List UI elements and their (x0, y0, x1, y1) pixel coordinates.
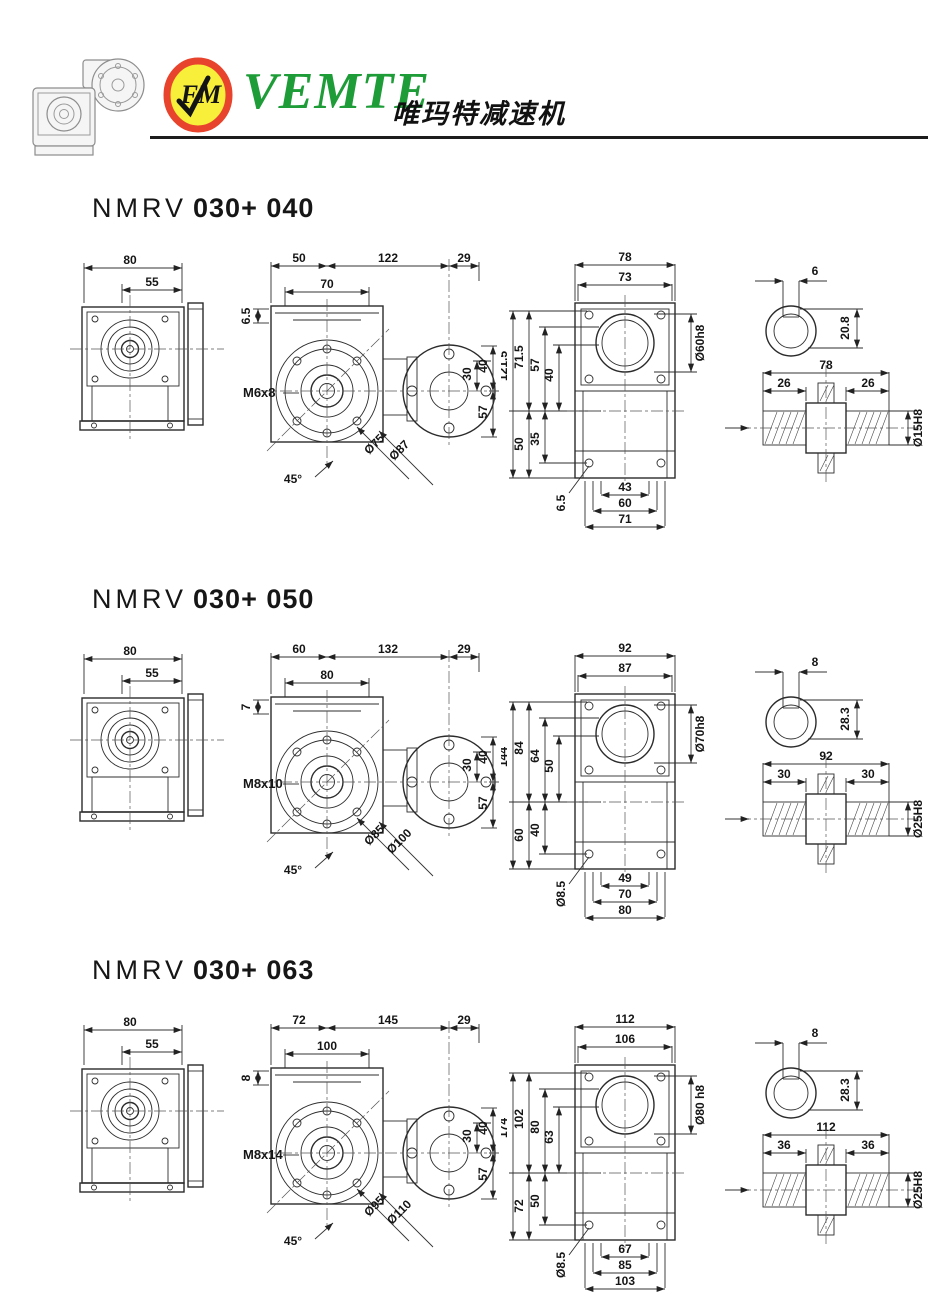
dim-label: 29 (457, 1013, 471, 1027)
series-name: NMRV (92, 584, 187, 614)
dim-label: 122 (378, 251, 398, 265)
dim-label: 60 (512, 828, 526, 842)
dim-label: 8 (812, 655, 819, 669)
dim-label: 30 (460, 758, 474, 772)
dim-label: 55 (145, 666, 159, 680)
dim-label: 102 (512, 1109, 526, 1129)
dim-label: 80 (618, 903, 632, 917)
view-side: 80 55 (66, 642, 241, 857)
dim-label: 121.5 (501, 351, 510, 381)
drawing-row: 80 55 60 132 29 (66, 642, 950, 924)
section-title: NMRV030+ 050 (92, 583, 950, 616)
dim-label: 112 (615, 1013, 635, 1026)
section-title: NMRV030+ 063 (92, 954, 950, 987)
dim-label: 40 (542, 368, 556, 382)
bore-label: Ø25H8 (911, 800, 925, 838)
dim-label: 49 (618, 871, 632, 885)
dim-label: 7 (241, 703, 253, 710)
dim-label: 28.3 (838, 1078, 852, 1102)
dim-label: 36 (777, 1138, 791, 1152)
dim-label: 55 (145, 275, 159, 289)
view-front: 72 145 29 100 8 (241, 1013, 501, 1273)
dim-label: 80 (123, 253, 137, 267)
series-name: NMRV (92, 193, 187, 223)
dim-label: 6.5 (554, 494, 568, 511)
view-front: 60 132 29 80 7 4 (241, 642, 501, 902)
dim-label: 63 (542, 1130, 556, 1144)
dim-label: 67 (618, 1242, 632, 1256)
dim-label: 64 (528, 749, 542, 763)
dim-label: 103 (615, 1274, 635, 1288)
dim-label: Ø8.5 (554, 1252, 568, 1278)
dim-label: 8 (241, 1074, 253, 1081)
dim-label: 80 (123, 644, 137, 658)
series-name: NMRV (92, 955, 187, 985)
dim-label: Ø110 (384, 1197, 414, 1227)
thread-label: M6x8 (243, 385, 276, 400)
angle-label: 45° (284, 1234, 302, 1248)
model-section: NMRV030+ 050 80 55 (0, 583, 950, 924)
dim-label: 57 (476, 1167, 490, 1181)
dim-label: 29 (457, 251, 471, 265)
view-side: 80 55 (66, 251, 241, 466)
dim-label: 92 (618, 642, 632, 655)
dim-label: 20.8 (838, 316, 852, 340)
thread-label: M8x14 (243, 1147, 284, 1162)
dim-label: 60 (292, 642, 306, 656)
dim-label: 8 (812, 1026, 819, 1040)
angle-label: 45° (284, 472, 302, 486)
dim-label: 30 (861, 767, 875, 781)
dim-label: 144 (501, 747, 510, 767)
view-back: 112 106 Ø80 h8 174 102 (501, 1013, 711, 1295)
dim-label: 26 (777, 376, 791, 390)
dim-label: 43 (618, 480, 632, 494)
dim-label: 70 (618, 887, 632, 901)
dim-label: 6.5 (241, 307, 253, 324)
dim-label: 78 (618, 251, 632, 264)
dim-label: Ø100 (384, 826, 415, 857)
dim-label: Ø87 (386, 437, 412, 463)
dim-label: 30 (777, 767, 791, 781)
header-rule (150, 136, 928, 139)
dim-label: 40 (476, 1121, 490, 1135)
dim-label: 55 (145, 1037, 159, 1051)
dim-label: 30 (460, 1129, 474, 1143)
dim-label: 26 (861, 376, 875, 390)
dim-label: 40 (528, 823, 542, 837)
dim-label: 132 (378, 642, 398, 656)
dim-label: 80 (528, 1120, 542, 1134)
page-header: FM VEMTE 唯玛特减速机 (0, 0, 950, 170)
dim-label: 72 (512, 1199, 526, 1213)
dim-label: 50 (528, 1194, 542, 1208)
dim-label: 57 (476, 796, 490, 810)
view-side: 80 55 (66, 1013, 241, 1228)
dim-label: 30 (460, 367, 474, 381)
dim-label: 50 (512, 437, 526, 451)
drawing-row: 80 55 72 145 29 (66, 1013, 950, 1295)
dim-label: 29 (457, 642, 471, 656)
dim-label: 35 (528, 432, 542, 446)
dim-label: 50 (542, 759, 556, 773)
dim-label: 36 (861, 1138, 875, 1152)
dim-label: 57 (476, 405, 490, 419)
dim-label: 71 (618, 512, 632, 526)
bore-label: Ø25H8 (911, 1171, 925, 1209)
dim-label: 84 (512, 741, 526, 755)
bore-label: Ø80 h8 (693, 1085, 707, 1125)
dim-label: 40 (476, 359, 490, 373)
model-section: NMRV030+ 063 80 55 (0, 954, 950, 1295)
dim-label: 72 (292, 1013, 306, 1027)
bore-label: Ø70h8 (693, 715, 707, 752)
dim-label: 106 (615, 1032, 635, 1046)
view-shaft: 6 20.8 78 26 26 (711, 251, 946, 491)
dim-label: 57 (528, 358, 542, 372)
model-section: NMRV030+ 040 80 55 (0, 192, 950, 533)
section-title: NMRV030+ 040 (92, 192, 950, 225)
sections-container: NMRV030+ 040 80 55 (0, 192, 950, 1295)
dim-label: 80 (320, 668, 334, 682)
dim-label: 145 (378, 1013, 398, 1027)
view-shaft: 8 28.3 92 30 30 (711, 642, 946, 882)
dim-label: 73 (618, 270, 632, 284)
dim-label: 174 (501, 1118, 510, 1138)
dim-label: 6 (812, 264, 819, 278)
bore-label: Ø60h8 (693, 324, 707, 361)
dim-label: 50 (292, 251, 306, 265)
gearbox-photo (25, 50, 155, 165)
model-code: 030+ 040 (193, 193, 314, 223)
dim-label: Ø8.5 (554, 881, 568, 907)
brand-name-cn: 唯玛特减速机 (392, 92, 566, 131)
dim-label: 70 (320, 277, 334, 291)
model-code: 030+ 063 (193, 955, 314, 985)
view-shaft: 8 28.3 112 36 36 (711, 1013, 946, 1253)
logo-monogram: FM (180, 80, 222, 109)
dim-label: 100 (317, 1039, 337, 1053)
brand-logo-icon: FM (162, 56, 236, 136)
dim-label: 85 (618, 1258, 632, 1272)
model-code: 030+ 050 (193, 584, 314, 614)
view-front: 50 122 29 70 6.5 (241, 251, 501, 511)
drawing-row: 80 55 50 122 29 (66, 251, 950, 533)
view-back: 92 87 Ø70h8 144 84 (501, 642, 711, 924)
dim-label: 80 (123, 1015, 137, 1029)
dim-label: 28.3 (838, 707, 852, 731)
dim-label: 40 (476, 750, 490, 764)
dim-label: 71.5 (512, 345, 526, 369)
angle-label: 45° (284, 863, 302, 877)
dim-label: 87 (618, 661, 632, 675)
view-back: 78 73 Ø60h8 121.5 71.5 (501, 251, 711, 533)
dim-label: 60 (618, 496, 632, 510)
bore-label: Ø15H8 (911, 409, 925, 447)
thread-label: M8x10 (243, 776, 283, 791)
